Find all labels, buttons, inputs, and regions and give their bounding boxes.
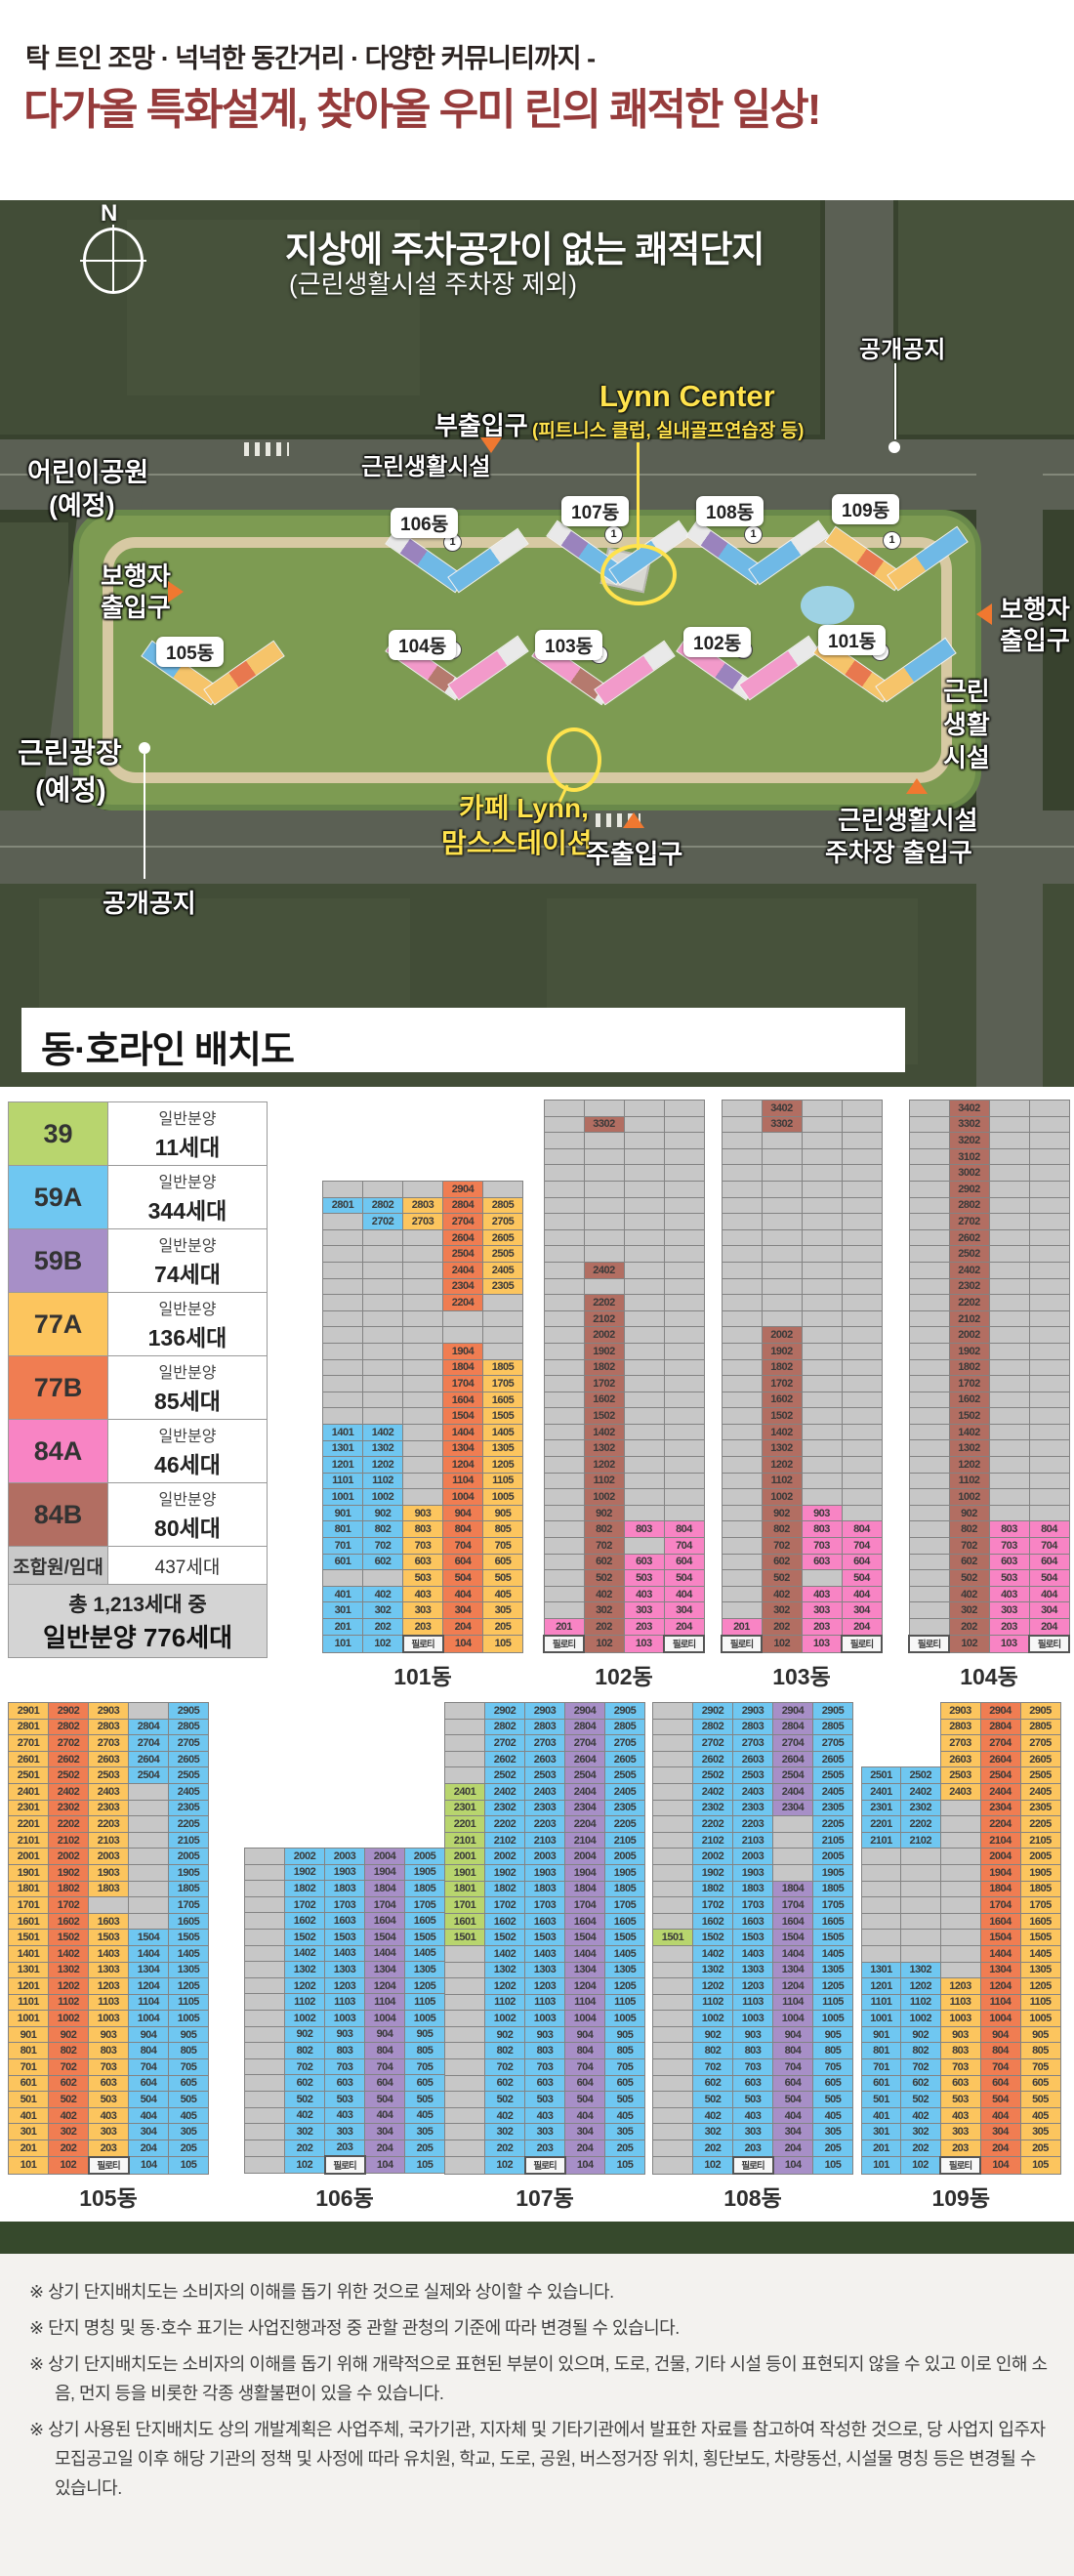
label-ped-gate-left-2: 출입구 — [101, 588, 171, 624]
reserved-cell — [842, 1197, 882, 1214]
unit-cell: 2903 — [733, 1703, 773, 1720]
unit-cell: 202 — [363, 1619, 403, 1636]
unit-cell: 1905 — [405, 1864, 445, 1881]
unit-cell: 2302 — [693, 1800, 733, 1816]
pilotis-cell: 필로티 — [544, 1636, 584, 1653]
reserved-cell — [363, 1376, 403, 1392]
reserved-cell — [664, 1278, 704, 1295]
unit-cell: 2205 — [813, 1816, 853, 1833]
unit-cell: 3402 — [762, 1101, 802, 1117]
unit-cell: 1005 — [483, 1489, 523, 1506]
unit-cell: 1404 — [129, 1945, 169, 1962]
unit-cell: 2102 — [693, 1832, 733, 1849]
reserved-cell — [403, 1182, 443, 1198]
unit-cell: 2402 — [949, 1262, 989, 1278]
unit-cell: 503 — [89, 2092, 129, 2108]
unit-cell: 1102 — [693, 1994, 733, 2011]
reserved-cell — [443, 1310, 483, 1327]
reserved-cell — [653, 1783, 693, 1800]
unit-cell: 2003 — [325, 1849, 365, 1865]
unit-cell: 604 — [664, 1554, 704, 1570]
reserved-cell — [909, 1148, 949, 1165]
unit-cell: 204 — [129, 2140, 169, 2157]
reserved-cell — [129, 1881, 169, 1897]
unit-cell: 1502 — [49, 1930, 89, 1946]
unit-cell: 1501 — [653, 1930, 693, 1946]
unit-cell: 2604 — [443, 1229, 483, 1246]
unit-cell: 1005 — [1020, 2011, 1060, 2027]
unit-cell: 104 — [365, 2156, 405, 2174]
label-open-space-bottom: 공개공지 — [103, 884, 196, 920]
reserved-cell — [862, 1913, 901, 1930]
unit-cell: 1502 — [285, 1929, 325, 1945]
unit-cell: 204 — [565, 2140, 605, 2157]
unit-cell: 405 — [1020, 2107, 1060, 2124]
unit-cell: 1001 — [9, 2011, 49, 2027]
unit-cell: 1302 — [901, 1962, 941, 1978]
legend-count: 일반분양46세대 — [108, 1420, 267, 1482]
unit-cell: 1905 — [169, 1864, 209, 1881]
unit-cell: 503 — [325, 2091, 365, 2107]
unit-cell: 504 — [129, 2092, 169, 2108]
building-label: 108동 — [652, 2180, 853, 2213]
unit-cell: 2704 — [980, 1735, 1020, 1752]
reserved-cell — [909, 1295, 949, 1311]
unit-cell: 1504 — [565, 1930, 605, 1946]
unit-cell: 2401 — [445, 1783, 485, 1800]
unit-cell: 2604 — [980, 1751, 1020, 1767]
map-subtitle: (근린생활시설 주차장 제외) — [289, 265, 577, 301]
unit-cell: 504 — [443, 1570, 483, 1587]
reserved-cell — [1029, 1392, 1069, 1408]
reserved-cell — [624, 1392, 664, 1408]
unit-cell: 1004 — [365, 2010, 405, 2026]
unit-cell: 904 — [565, 2026, 605, 2043]
reserved-cell — [363, 1570, 403, 1587]
reserved-cell — [544, 1229, 584, 1246]
unit-cell: 1805 — [813, 1881, 853, 1897]
pill-109: 109동 — [832, 494, 899, 524]
unit-cell: 204 — [842, 1619, 882, 1636]
unit-cell: 2402 — [693, 1783, 733, 1800]
reserved-cell — [483, 1295, 523, 1311]
reserved-cell — [664, 1473, 704, 1489]
reserved-cell — [842, 1424, 882, 1440]
unit-cell: 1102 — [485, 1994, 525, 2011]
unit-cell: 1604 — [443, 1392, 483, 1408]
unit-cell: 1702 — [285, 1896, 325, 1913]
reserved-cell — [802, 1473, 842, 1489]
unit-cell: 702 — [949, 1538, 989, 1555]
unit-cell: 503 — [403, 1570, 443, 1587]
reserved-cell — [842, 1392, 882, 1408]
unit-cell: 602 — [363, 1554, 403, 1570]
reserved-cell — [664, 1359, 704, 1376]
reserved-cell — [624, 1101, 664, 1117]
unit-cell: 603 — [802, 1554, 842, 1570]
unit-cell: 1404 — [773, 1945, 813, 1962]
reserved-cell — [624, 1116, 664, 1133]
reserved-cell — [802, 1262, 842, 1278]
unit-cell: 901 — [862, 2026, 901, 2043]
unit-cell: 302 — [693, 2124, 733, 2140]
reserved-cell — [653, 2075, 693, 2092]
unit-cell: 2403 — [89, 1783, 129, 1800]
reserved-cell — [624, 1440, 664, 1457]
reserved-cell — [653, 2026, 693, 2043]
reserved-cell — [940, 1945, 980, 1962]
unit-cell: 2001 — [445, 1849, 485, 1865]
reserved-cell — [909, 1214, 949, 1230]
unit-cell: 1601 — [445, 1913, 485, 1930]
label-plaza-2: (예정) — [35, 768, 106, 809]
unit-cell: 2203 — [733, 1816, 773, 1833]
reserved-cell — [245, 1896, 285, 1913]
unit-cell: 1404 — [565, 1945, 605, 1962]
unit-cell: 2801 — [9, 1719, 49, 1735]
unit-cell: 1305 — [813, 1962, 853, 1978]
unit-cell: 2002 — [485, 1849, 525, 1865]
unit-cell: 304 — [1029, 1602, 1069, 1619]
unit-cell: 302 — [485, 2124, 525, 2140]
legend-assoc-row: 조합원/임대 437세대 — [9, 1547, 267, 1585]
unit-cell: 1905 — [1020, 1864, 1060, 1881]
unit-cell: 1802 — [285, 1881, 325, 1897]
reserved-cell — [245, 2124, 285, 2140]
reserved-cell — [129, 1832, 169, 1849]
reserved-cell — [544, 1554, 584, 1570]
reserved-cell — [909, 1376, 949, 1392]
reserved-cell — [664, 1116, 704, 1133]
reserved-cell — [624, 1214, 664, 1230]
unit-cell: 504 — [1029, 1570, 1069, 1587]
unit-cell: 2602 — [949, 1229, 989, 1246]
label-children-park-2: (예정) — [49, 484, 115, 522]
reserved-cell — [722, 1359, 762, 1376]
unit-cell: 2002 — [285, 1849, 325, 1865]
unit-cell: 1902 — [949, 1343, 989, 1359]
reserved-cell — [363, 1408, 403, 1425]
reserved-cell — [653, 2043, 693, 2059]
unit-cell: 1603 — [525, 1913, 565, 1930]
pilotis-cell: 필로티 — [722, 1636, 762, 1653]
unit-cell: 2203 — [89, 1816, 129, 1833]
unit-cell: 1003 — [89, 2011, 129, 2027]
reserved-cell — [403, 1327, 443, 1344]
unit-cell: 104 — [443, 1636, 483, 1653]
reserved-cell — [722, 1116, 762, 1133]
unit-grid-109: 2903290429052803280428052703270427052603… — [861, 1702, 1061, 2213]
unit-cell: 2305 — [483, 1278, 523, 1295]
unit-cell: 2005 — [405, 1849, 445, 1865]
unit-cell: 202 — [762, 1619, 802, 1636]
unit-cell: 1703 — [525, 1897, 565, 1914]
reserved-cell — [909, 1133, 949, 1149]
unit-cell: 102 — [363, 1636, 403, 1653]
reserved-cell — [722, 1586, 762, 1602]
reserved-cell — [1029, 1197, 1069, 1214]
reserved-cell — [909, 1570, 949, 1587]
unit-cell: 1005 — [605, 2011, 645, 2027]
unit-cell: 1904 — [365, 1864, 405, 1881]
unit-cell: 801 — [862, 2043, 901, 2059]
reserved-cell — [403, 1424, 443, 1440]
reserved-cell — [544, 1197, 584, 1214]
unit-cell: 1702 — [693, 1897, 733, 1914]
reserved-cell — [653, 1816, 693, 1833]
unit-cell: 3302 — [584, 1116, 624, 1133]
unit-cell: 303 — [325, 2124, 365, 2140]
unit-cell: 2202 — [693, 1816, 733, 1833]
unit-cell: 2503 — [89, 1767, 129, 1784]
unit-cell: 302 — [901, 2124, 941, 2140]
unit-cell: 2803 — [403, 1197, 443, 1214]
unit-cell: 2302 — [949, 1278, 989, 1295]
unit-cell: 903 — [733, 2026, 773, 2043]
reserved-cell — [403, 1278, 443, 1295]
unit-cell: 904 — [980, 2026, 1020, 2043]
unit-cell: 1305 — [169, 1962, 209, 1978]
unit-cell: 203 — [624, 1619, 664, 1636]
building-cluster-106: 1 — [381, 527, 537, 610]
unit-cell: 2404 — [773, 1783, 813, 1800]
unit-cell: 1303 — [733, 1962, 773, 1978]
unit-cell: 2405 — [483, 1262, 523, 1278]
empty-cell — [862, 1751, 901, 1767]
unit-cell: 1605 — [169, 1913, 209, 1930]
unit-cell: 702 — [363, 1538, 403, 1555]
reserved-cell — [445, 1751, 485, 1767]
unit-cell: 1402 — [693, 1945, 733, 1962]
unit-cell: 2603 — [525, 1751, 565, 1767]
reserved-cell — [363, 1229, 403, 1246]
unit-cell: 1304 — [443, 1440, 483, 1457]
unit-cell: 1002 — [285, 2010, 325, 2026]
label-parking-exit-1: 근린생활시설 — [838, 801, 978, 837]
unit-cell: 2803 — [733, 1719, 773, 1735]
pill-102: 102동 — [683, 627, 751, 657]
reserved-cell — [722, 1327, 762, 1344]
reserved-cell — [403, 1262, 443, 1278]
reserved-cell — [323, 1246, 363, 1263]
reserved-cell — [624, 1538, 664, 1555]
reserved-cell — [653, 1735, 693, 1752]
unit-cell: 502 — [584, 1570, 624, 1587]
legend-type: 84B — [9, 1483, 108, 1546]
compass-north-label: N — [101, 200, 117, 228]
unit-cell: 202 — [285, 2140, 325, 2156]
unit-cell: 3302 — [949, 1116, 989, 1133]
unit-grid-103: 3402330220021902180217021602150214021302… — [721, 1100, 883, 1691]
unit-cell: 104 — [565, 2157, 605, 2175]
unit-cell: 604 — [980, 2075, 1020, 2092]
unit-cell: 2905 — [1020, 1703, 1060, 1720]
reserved-cell — [129, 1816, 169, 1833]
unit-cell: 705 — [605, 2059, 645, 2076]
footer: ※ 상기 단지배치도는 소비자의 이해를 돕기 위한 것으로 실제와 상이할 수… — [0, 2254, 1074, 2576]
unit-cell: 1703 — [325, 1896, 365, 1913]
unit-cell: 3002 — [949, 1165, 989, 1182]
unit-cell: 603 — [733, 2075, 773, 2092]
unit-cell: 2203 — [525, 1816, 565, 1833]
unit-cell: 1005 — [813, 2011, 853, 2027]
unit-cell: 105 — [1020, 2157, 1060, 2175]
unit-cell: 2005 — [605, 1849, 645, 1865]
reserved-cell — [1029, 1473, 1069, 1489]
reserved-cell — [802, 1424, 842, 1440]
unit-cell: 405 — [405, 2107, 445, 2124]
page: 탁 트인 조망 · 넉넉한 동간거리 · 다양한 커뮤니티까지 - 다가올 특화… — [0, 0, 1074, 2576]
unit-cell: 1905 — [813, 1864, 853, 1881]
unit-cell: 502 — [285, 2091, 325, 2107]
reserved-cell — [940, 1930, 980, 1946]
footer-note: ※ 단지 명칭 및 동·호수 표기는 사업진행과정 중 관할 관청의 기준에 따… — [29, 2313, 1050, 2343]
unit-cell: 505 — [405, 2091, 445, 2107]
reserved-cell — [722, 1424, 762, 1440]
reserved-cell — [802, 1229, 842, 1246]
unit-cell: 1303 — [89, 1962, 129, 1978]
reserved-cell — [909, 1229, 949, 1246]
unit-cell: 705 — [169, 2059, 209, 2076]
reserved-cell — [842, 1489, 882, 1506]
unit-cell: 1602 — [762, 1392, 802, 1408]
unit-cell: 702 — [693, 2059, 733, 2076]
unit-cell: 702 — [485, 2059, 525, 2076]
unit-cell: 905 — [605, 2026, 645, 2043]
unit-cell: 305 — [405, 2124, 445, 2140]
unit-cell: 204 — [1029, 1619, 1069, 1636]
reserved-cell — [909, 1619, 949, 1636]
unit-cell: 1101 — [9, 1994, 49, 2011]
reserved-cell — [989, 1359, 1029, 1376]
reserved-cell — [624, 1262, 664, 1278]
unit-cell: 1702 — [949, 1376, 989, 1392]
reserved-cell — [445, 2059, 485, 2076]
reserved-cell — [129, 1783, 169, 1800]
unit-cell: 1504 — [129, 1930, 169, 1946]
reserved-cell — [762, 1133, 802, 1149]
reserved-cell — [842, 1181, 882, 1197]
unit-cell: 704 — [773, 2059, 813, 2076]
unit-cell: 1502 — [949, 1408, 989, 1425]
unit-cell: 902 — [285, 2026, 325, 2043]
reserved-cell — [403, 1295, 443, 1311]
unit-cell: 2705 — [605, 1735, 645, 1752]
unit-cell: 1402 — [584, 1424, 624, 1440]
unit-cell: 1904 — [565, 1864, 605, 1881]
pill-107: 107동 — [561, 496, 629, 526]
unit-cell: 2201 — [9, 1816, 49, 1833]
unit-cell: 2305 — [813, 1800, 853, 1816]
unit-cell: 602 — [762, 1554, 802, 1570]
unit-cell: 703 — [325, 2058, 365, 2075]
reserved-cell — [544, 1521, 584, 1538]
pilotis-cell: 필로티 — [842, 1636, 882, 1653]
reserved-cell — [989, 1197, 1029, 1214]
reserved-cell — [89, 1897, 129, 1914]
footer-note: ※ 상기 단지배치도는 소비자의 이해를 돕기 위한 것으로 실제와 상이할 수… — [29, 2277, 1050, 2306]
legend-type: 59A — [9, 1166, 108, 1228]
label-neighborhood-right-2: 생활 — [943, 705, 990, 741]
reserved-cell — [245, 2075, 285, 2092]
unit-cell: 1701 — [445, 1897, 485, 1914]
pilotis-cell: 필로티 — [940, 2157, 980, 2175]
map-block — [898, 200, 1074, 435]
unit-cell: 1903 — [325, 1864, 365, 1881]
unit-cell: 805 — [1020, 2043, 1060, 2059]
unit-cell: 701 — [862, 2059, 901, 2076]
unit-cell: 1902 — [584, 1343, 624, 1359]
site-map: 1 1 1 1 1 1 1 — [0, 200, 1074, 1087]
reserved-cell — [544, 1295, 584, 1311]
unit-cell: 304 — [129, 2124, 169, 2140]
reserved-cell — [901, 1849, 941, 1865]
reserved-cell — [445, 2075, 485, 2092]
unit-cell: 201 — [862, 2140, 901, 2157]
unit-cell: 2504 — [443, 1246, 483, 1263]
pilotis-cell: 필로티 — [909, 1636, 949, 1653]
unit-cell: 1402 — [762, 1424, 802, 1440]
reserved-cell — [445, 1945, 485, 1962]
unit-cell: 1405 — [169, 1945, 209, 1962]
reserved-cell — [989, 1376, 1029, 1392]
unit-cell: 305 — [1020, 2124, 1060, 2140]
unit-cell: 1104 — [365, 1994, 405, 2011]
unit-cell: 2504 — [129, 1767, 169, 1784]
unit-cell: 2703 — [940, 1735, 980, 1752]
unit-cell: 403 — [525, 2107, 565, 2124]
unit-cell: 1402 — [363, 1424, 403, 1440]
unit-cell: 1003 — [733, 2011, 773, 2027]
unit-cell: 1002 — [485, 2011, 525, 2027]
pilotis-cell: 필로티 — [1029, 1636, 1069, 1653]
unit-cell: 3402 — [949, 1101, 989, 1117]
reserved-cell — [653, 2107, 693, 2124]
reserved-cell — [245, 2058, 285, 2075]
unit-cell: 1603 — [733, 1913, 773, 1930]
reserved-cell — [323, 1570, 363, 1587]
reserved-cell — [802, 1327, 842, 1344]
unit-cell: 503 — [989, 1570, 1029, 1587]
reserved-cell — [664, 1181, 704, 1197]
unit-cell: 1903 — [525, 1864, 565, 1881]
unit-cell: 2905 — [169, 1703, 209, 1720]
reserved-cell — [323, 1214, 363, 1230]
legend-count: 일반분양136세대 — [108, 1293, 267, 1355]
unit-cell: 1202 — [949, 1457, 989, 1474]
unit-grid-104: 3402330232023102300229022802270226022502… — [908, 1100, 1070, 1691]
unit-cell: 1105 — [605, 1994, 645, 2011]
unit-cell: 302 — [363, 1602, 403, 1619]
unit-cell: 203 — [403, 1619, 443, 1636]
reserved-cell — [722, 1246, 762, 1263]
unit-cell: 1802 — [762, 1359, 802, 1376]
unit-cell: 1805 — [605, 1881, 645, 1897]
unit-cell: 2304 — [443, 1278, 483, 1295]
reserved-cell — [445, 1978, 485, 1995]
reserved-cell — [544, 1392, 584, 1408]
unit-cell: 2002 — [949, 1327, 989, 1344]
unit-cell: 403 — [624, 1586, 664, 1602]
compass-icon — [83, 228, 144, 294]
reserved-cell — [653, 1897, 693, 1914]
reserved-cell — [842, 1310, 882, 1327]
reserved-cell — [802, 1310, 842, 1327]
unit-cell: 2305 — [169, 1800, 209, 1816]
legend-row: 59B일반분양74세대 — [9, 1229, 267, 1293]
reserved-cell — [1029, 1424, 1069, 1440]
unit-cell: 1501 — [445, 1930, 485, 1946]
